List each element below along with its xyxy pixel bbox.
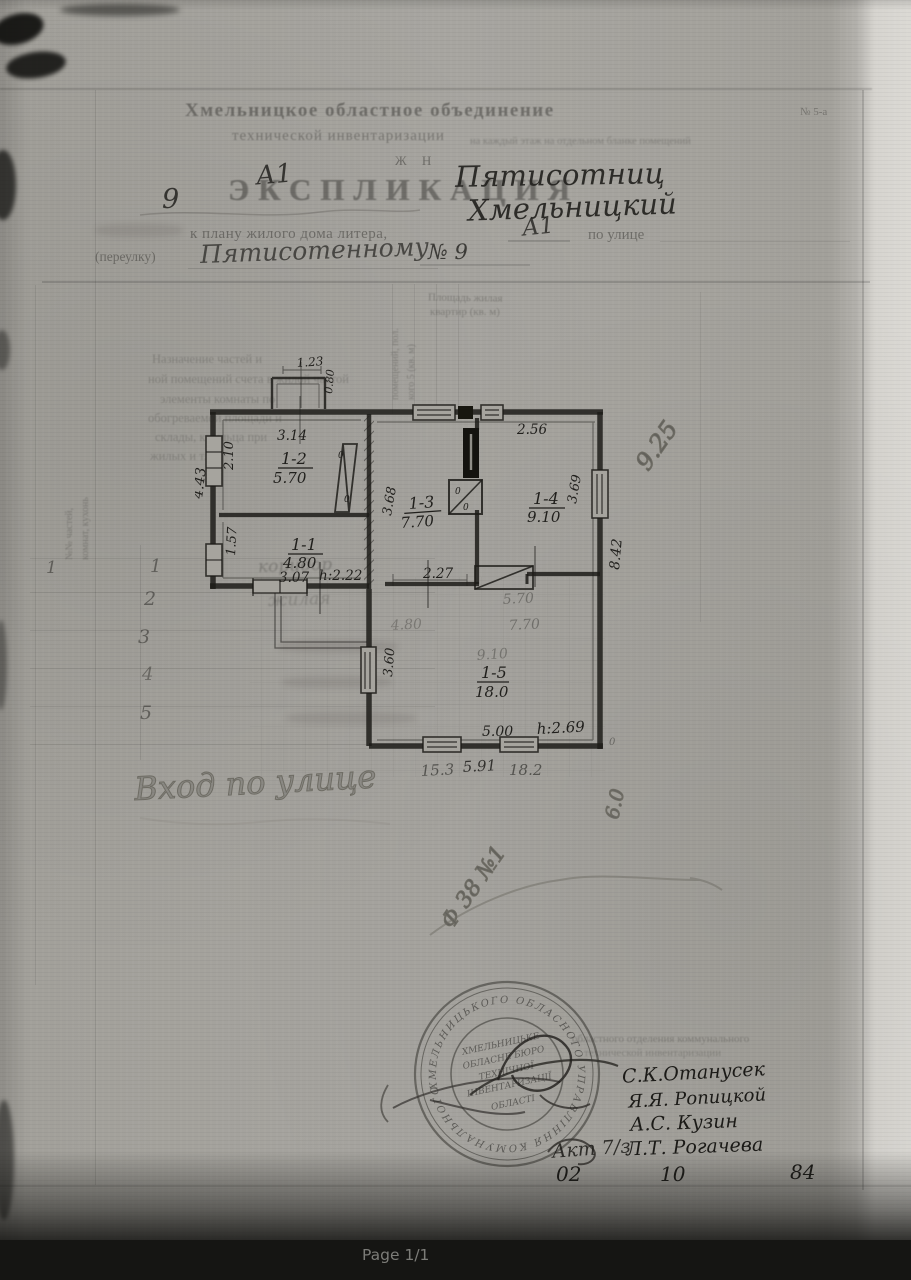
dim-label: 2.10 [222, 441, 237, 471]
scan-blob [60, 4, 180, 16]
hw-settlement-line2: Хмельницкий [467, 186, 677, 227]
table-first-col: 1 [46, 558, 57, 578]
hw-litera-top: А1 [255, 158, 294, 191]
table-row-no: 2 [144, 588, 156, 610]
room-id: 1-2 [281, 449, 307, 468]
table-row-no: 4 [142, 664, 153, 685]
field-underline [420, 264, 530, 266]
scan-blob [0, 150, 16, 220]
door-zero: 0 [609, 737, 616, 748]
pencil-area-note: 9.25 [630, 416, 684, 476]
col-header-area2: квартир (кв. м) [430, 306, 500, 318]
field-underline [188, 268, 438, 269]
dim-label: 3.68 [380, 486, 400, 517]
erased-area: 5.70 [502, 590, 534, 608]
form-ref: № 5-а [800, 106, 827, 118]
room-id: 1-1 [291, 535, 317, 554]
dim-label: 2.56 [516, 422, 547, 438]
height-note: h:2.69 [536, 717, 585, 738]
dim-label: 4.43 [195, 467, 210, 501]
height-note: h:2.22 [319, 568, 362, 584]
org-name-line2: технической инвентаризации [232, 128, 445, 145]
table-row-no: 1 [150, 556, 161, 577]
table-row-no: 3 [138, 626, 150, 648]
signature-name: С.К.Отанусек [622, 1058, 766, 1087]
room-area: 5.70 [273, 469, 307, 487]
pencil-six-note: 6.0 [601, 787, 629, 821]
faded-text-smudge [95, 224, 183, 237]
pencil-f38-note: Ф 38 №1 [436, 841, 511, 933]
scanned-page: Хмельницкое областное объединение технич… [0, 0, 911, 1280]
scan-blob [0, 330, 10, 370]
form-col-line [35, 285, 36, 985]
col-header-area1: Площадь жилая [428, 291, 503, 304]
field-underline [508, 240, 570, 242]
form-small-note: на каждый этаж на отдельном бланке помещ… [470, 136, 691, 147]
form-code: Ж Н [395, 153, 437, 169]
scan-blob [0, 620, 7, 710]
form-rule [42, 281, 870, 283]
door-zero: 0 [344, 495, 350, 505]
dim-label: 5.00 [482, 724, 513, 740]
org-name-line1: Хмельницкое областное объединение [185, 100, 555, 122]
lane-label: (переулку) [95, 249, 156, 265]
room-id: 1-5 [481, 663, 507, 682]
sig-faint-line1: областного отделения коммунального [572, 1033, 749, 1045]
room-area: 9.10 [527, 508, 561, 526]
room-area: 18.0 [475, 683, 509, 701]
below-dim: 5.91 [462, 756, 496, 776]
below-dim: 18.2 [509, 761, 542, 779]
erased-area: 7.70 [508, 616, 540, 634]
street-label: по улице [588, 227, 644, 244]
sig-faint-line2: технической инвентаризации [584, 1047, 721, 1059]
below-dim: 15.3 [420, 760, 454, 780]
room-area: 7.70 [400, 512, 435, 532]
dim-label: 2.27 [422, 566, 453, 582]
dim-label: 1.57 [224, 526, 241, 556]
page-footer-label: Page 1/1 [362, 1246, 429, 1264]
room-id: 1-3 [408, 492, 435, 513]
scan-blob [4, 48, 67, 82]
door-zero: 0 [455, 487, 461, 497]
erased-area: 4.80 [389, 616, 422, 634]
erased-area: 9.10 [476, 646, 508, 664]
dim-label: 0.80 [322, 369, 337, 395]
scan-blob [0, 8, 47, 50]
dim-label: 8.42 [607, 538, 626, 571]
floor-plan: 3.14 1-2 5.70 2.10 4.43 1.57 1-1 4.80 3.… [195, 352, 635, 780]
door-zero: 0 [338, 451, 344, 461]
hw-litera-field: А1 [521, 212, 556, 241]
page-edge-line [862, 90, 864, 1190]
room-id: 1-4 [533, 489, 559, 508]
footer-bar [0, 1240, 911, 1280]
signature-name: Я.Я. Ропицкой [628, 1084, 767, 1112]
field-underline [660, 241, 850, 242]
pencil-stroke [430, 876, 722, 935]
door-zero: 0 [463, 503, 469, 513]
rot-left-header1: №№ частей, [64, 508, 75, 560]
hw-house-number: № 9 [428, 240, 468, 264]
signature-name: А.С. Кузин [630, 1110, 739, 1136]
pencil-stroke [140, 818, 390, 824]
form-col-line [140, 545, 141, 760]
pencil-stroke [140, 210, 420, 215]
dim-label: 3.69 [565, 474, 585, 505]
dim-label: 3.60 [381, 647, 398, 677]
table-row-no: 5 [140, 702, 152, 724]
rot-left-header2: комнат, кухонь [80, 497, 91, 560]
stamp-inner-line: ОБЛАСТІ [490, 1094, 536, 1113]
dim-label: 3.07 [279, 570, 309, 586]
form-col-line [700, 292, 701, 622]
dim-label: 1.23 [296, 354, 324, 370]
crease-line [0, 88, 872, 90]
hw-number-left: 9 [162, 184, 179, 215]
dim-label: 3.14 [277, 428, 307, 444]
